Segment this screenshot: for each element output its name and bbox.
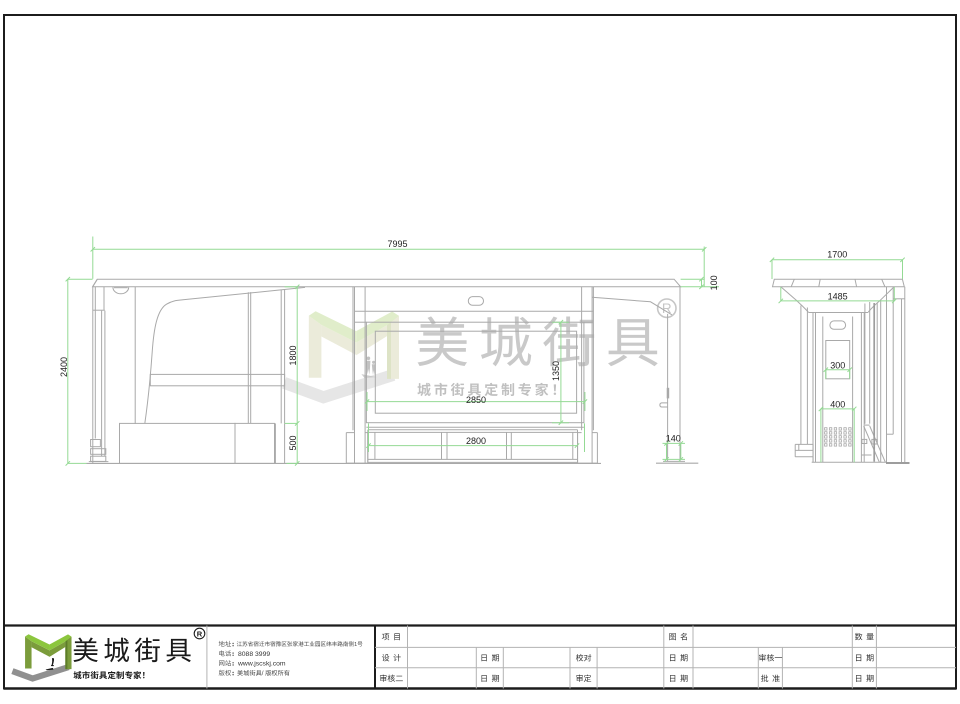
svg-text:1485: 1485 [828,291,848,301]
svg-text:1: 1 [354,642,357,648]
svg-text:400: 400 [830,399,845,409]
svg-text:8088 3999: 8088 3999 [238,651,270,658]
svg-text:2800: 2800 [466,436,486,446]
svg-text:www.jscskj.com: www.jscskj.com [237,661,286,668]
svg-text:300: 300 [830,360,845,370]
svg-text:7995: 7995 [387,239,407,249]
svg-text:2400: 2400 [59,357,69,377]
svg-text:R: R [197,629,203,638]
svg-text:1800: 1800 [288,345,298,365]
svg-text:1350: 1350 [551,361,561,381]
svg-text:100: 100 [709,275,719,290]
svg-text:/: / [262,670,264,677]
svg-text:1700: 1700 [827,250,847,260]
svg-text:2850: 2850 [466,395,486,405]
svg-text:500: 500 [288,435,298,450]
